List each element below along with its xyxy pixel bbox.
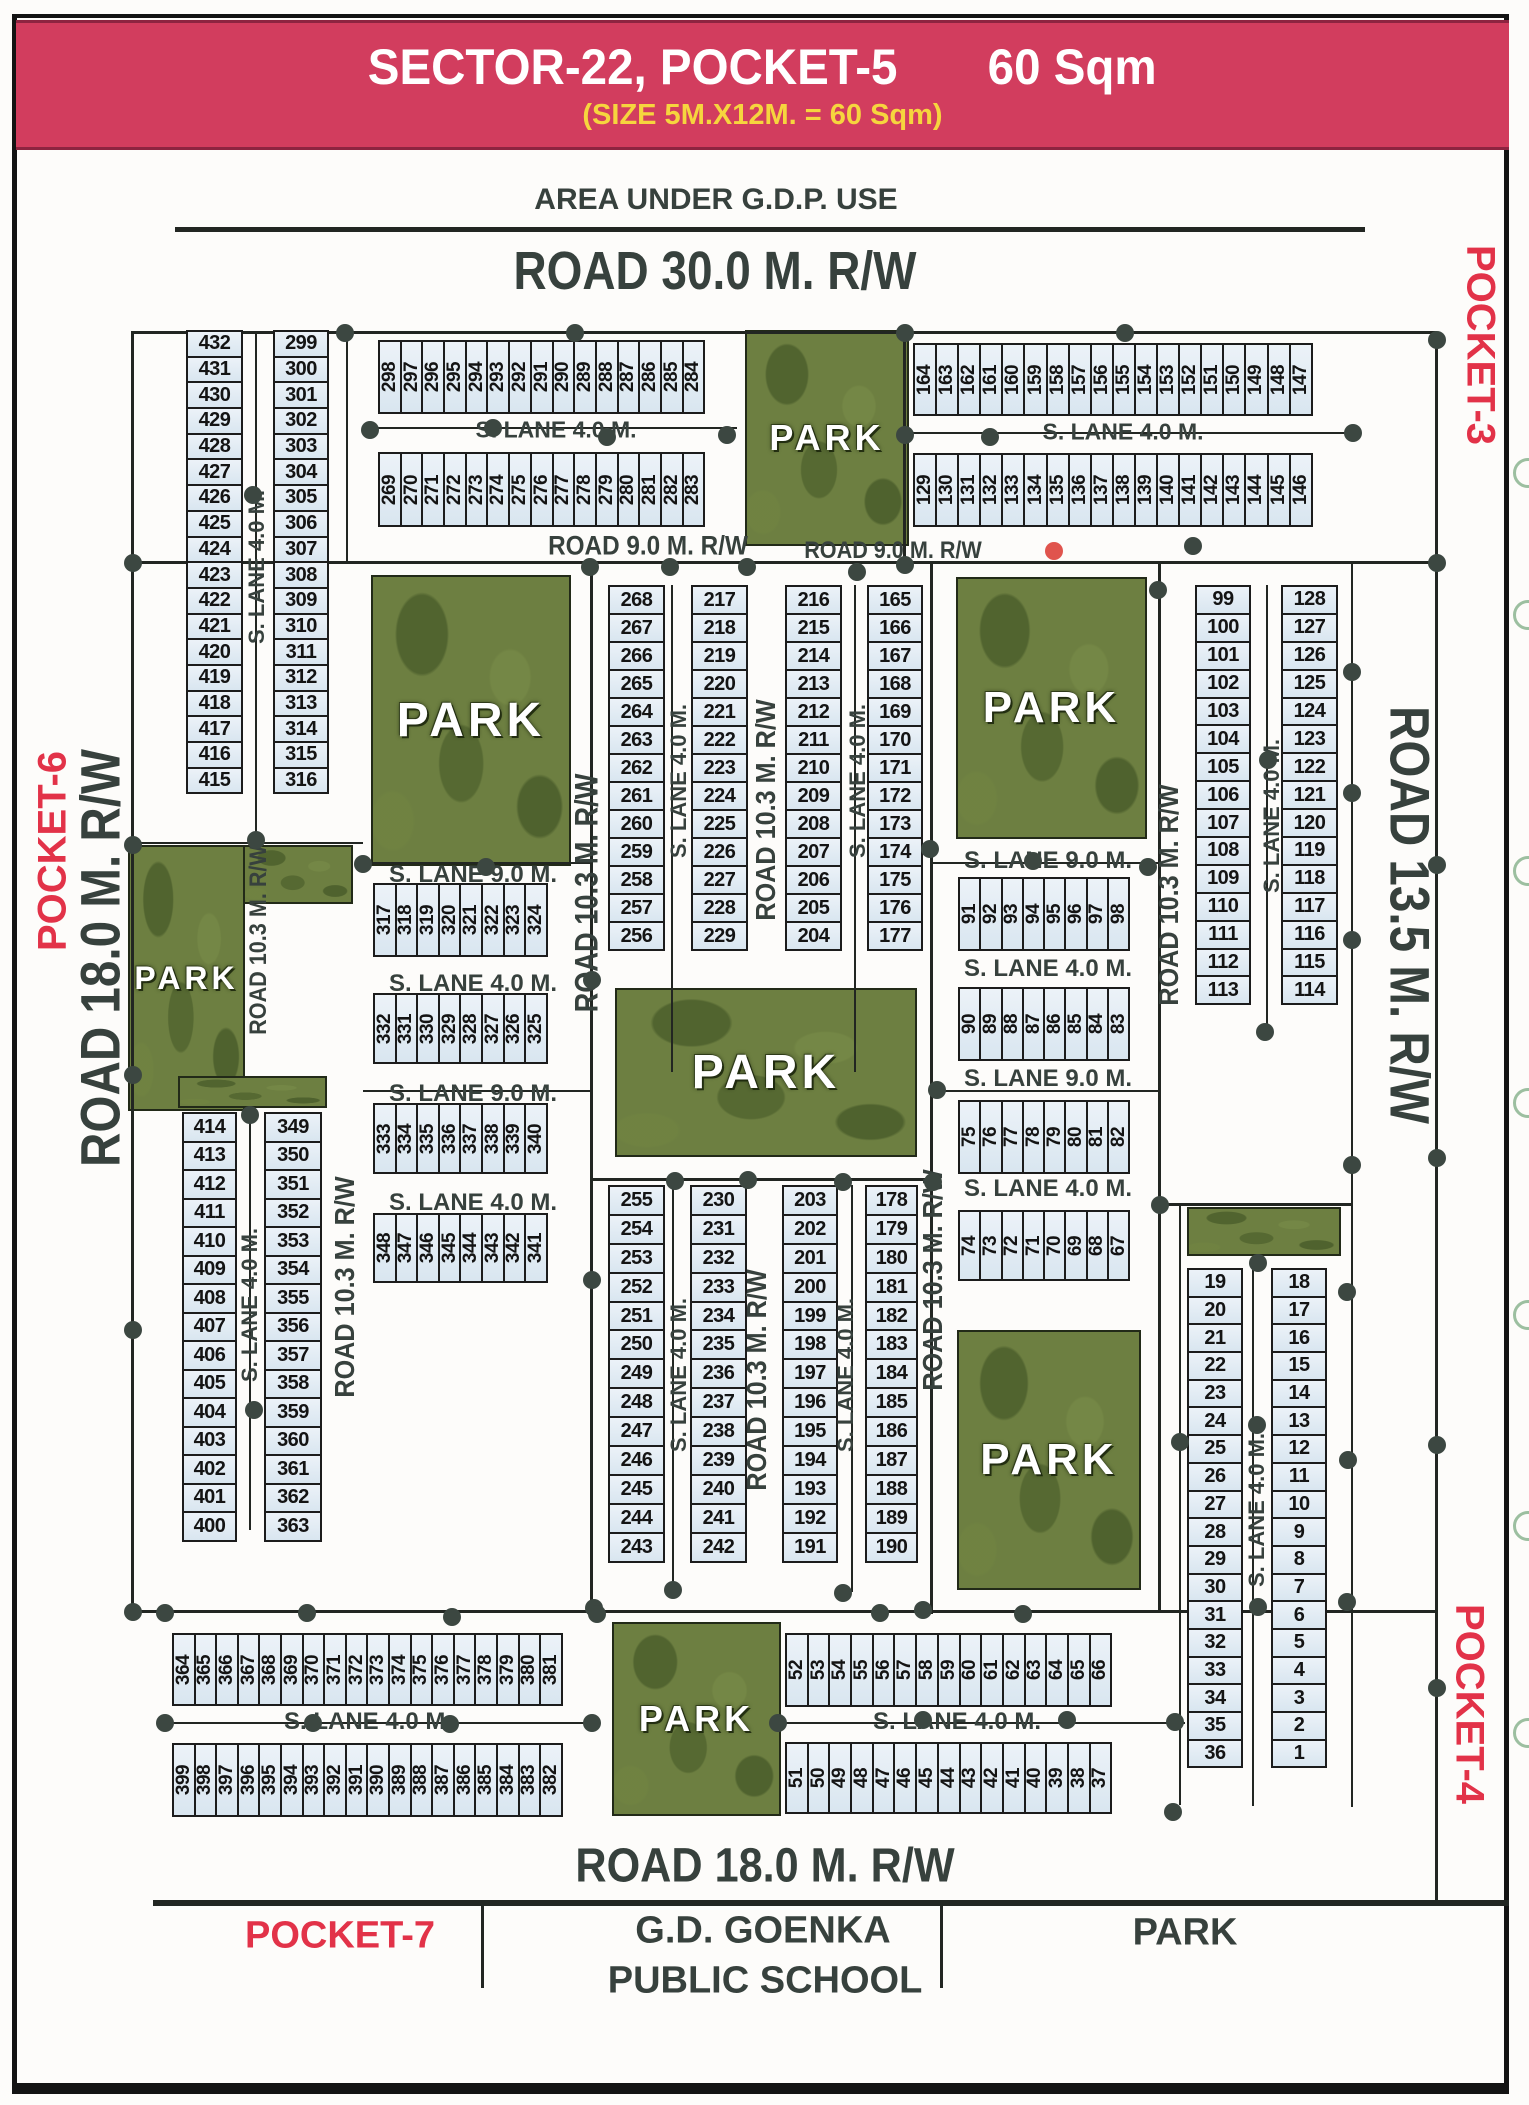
plot-357: 357 xyxy=(264,1340,322,1371)
plot-387: 387 xyxy=(431,1743,455,1817)
plot-column: 4324314304294284274264254244234224214204… xyxy=(186,330,243,794)
plot-389: 389 xyxy=(388,1743,412,1817)
plot-46: 46 xyxy=(893,1742,917,1814)
plot-343: 343 xyxy=(481,1213,505,1283)
plot-12: 12 xyxy=(1271,1434,1327,1464)
plot-360: 360 xyxy=(264,1426,322,1457)
plot-429: 429 xyxy=(186,407,243,435)
label-pocket-7: POCKET-7 xyxy=(245,1915,435,1958)
node-dot xyxy=(1338,1283,1356,1301)
plot-43: 43 xyxy=(959,1742,983,1814)
node-dot xyxy=(1149,581,1167,599)
plot-385: 385 xyxy=(474,1743,498,1817)
plot-15: 15 xyxy=(1271,1351,1327,1381)
plot-427: 427 xyxy=(186,458,243,486)
plot-411: 411 xyxy=(182,1198,237,1229)
plot-150: 150 xyxy=(1222,343,1246,416)
plot-221: 221 xyxy=(691,697,748,727)
node-dot xyxy=(664,1581,682,1599)
plot-21: 21 xyxy=(1187,1323,1243,1353)
node-dot xyxy=(484,419,502,437)
plot-152: 152 xyxy=(1178,343,1202,416)
plot-column: 1281271261251241231221211201191181171161… xyxy=(1281,585,1338,1005)
plot-237: 237 xyxy=(690,1387,747,1418)
park-label: PARK xyxy=(134,960,238,997)
plot-10: 10 xyxy=(1271,1490,1327,1520)
plot-103: 103 xyxy=(1195,697,1251,727)
plot-173: 173 xyxy=(867,809,923,839)
node-dot xyxy=(598,428,616,446)
plot-64: 64 xyxy=(1045,1633,1069,1707)
node-dot xyxy=(1151,1196,1169,1214)
plot-207: 207 xyxy=(785,837,842,867)
plot-308: 308 xyxy=(273,561,329,589)
plot-204: 204 xyxy=(785,921,842,951)
plot-283: 283 xyxy=(682,452,706,527)
plot-421: 421 xyxy=(186,613,243,641)
plot-100: 100 xyxy=(1195,613,1251,643)
plot-66: 66 xyxy=(1089,1633,1113,1707)
plot-371: 371 xyxy=(323,1633,347,1706)
plot-390: 390 xyxy=(366,1743,390,1817)
plot-255: 255 xyxy=(608,1185,665,1216)
plot-110: 110 xyxy=(1195,892,1251,922)
plot-90: 90 xyxy=(958,987,981,1061)
plot-293: 293 xyxy=(486,340,510,414)
plot-170: 170 xyxy=(867,725,923,755)
plot-244: 244 xyxy=(608,1503,665,1534)
plot-69: 69 xyxy=(1064,1210,1087,1281)
plot-88: 88 xyxy=(1001,987,1024,1061)
plot-strip: 7576777879808182 xyxy=(958,1100,1130,1174)
road-line xyxy=(590,561,593,1614)
plot-334: 334 xyxy=(395,1103,419,1174)
node-dot xyxy=(566,324,584,342)
plot-4: 4 xyxy=(1271,1656,1327,1686)
node-dot xyxy=(1428,331,1446,349)
plot-236: 236 xyxy=(690,1358,747,1389)
plot-346: 346 xyxy=(416,1213,440,1283)
plot-384: 384 xyxy=(496,1743,520,1817)
plot-155: 155 xyxy=(1112,343,1136,416)
node-dot xyxy=(1339,1451,1357,1469)
node-dot xyxy=(924,1173,942,1191)
plot-57: 57 xyxy=(893,1633,917,1707)
scan-artifact-ring xyxy=(1513,856,1529,886)
frame-bottom xyxy=(12,2083,1509,2094)
plot-84: 84 xyxy=(1086,987,1109,1061)
plot-231: 231 xyxy=(690,1214,747,1245)
plot-373: 373 xyxy=(366,1633,390,1706)
plot-61: 61 xyxy=(980,1633,1004,1707)
plot-128: 128 xyxy=(1281,585,1338,615)
plot-7: 7 xyxy=(1271,1573,1327,1603)
plot-239: 239 xyxy=(690,1445,747,1476)
plot-130: 130 xyxy=(935,453,959,527)
park-label: PARK xyxy=(692,1045,840,1100)
plot-29: 29 xyxy=(1187,1545,1243,1575)
plot-156: 156 xyxy=(1090,343,1114,416)
plot-392: 392 xyxy=(323,1743,347,1817)
plot-426: 426 xyxy=(186,484,243,512)
plot-141: 141 xyxy=(1178,453,1202,527)
plot-310: 310 xyxy=(273,613,329,641)
plot-249: 249 xyxy=(608,1358,665,1389)
plot-168: 168 xyxy=(867,669,923,699)
node-dot xyxy=(1343,784,1361,802)
plot-70: 70 xyxy=(1043,1210,1066,1281)
plot-259: 259 xyxy=(608,837,665,867)
plot-315: 315 xyxy=(273,741,329,769)
plot-328: 328 xyxy=(459,993,483,1064)
plot-129: 129 xyxy=(913,453,937,527)
park: PARK xyxy=(615,988,917,1157)
plot-67: 67 xyxy=(1107,1210,1130,1281)
plot-256: 256 xyxy=(608,921,665,951)
plot-261: 261 xyxy=(608,781,665,811)
plot-72: 72 xyxy=(1001,1210,1024,1281)
plot-353: 353 xyxy=(264,1226,322,1257)
node-dot xyxy=(583,1714,601,1732)
plot-345: 345 xyxy=(438,1213,462,1283)
plot-322: 322 xyxy=(481,883,505,957)
plot-258: 258 xyxy=(608,865,665,895)
plot-307: 307 xyxy=(273,536,329,564)
node-dot xyxy=(124,836,142,854)
plot-286: 286 xyxy=(638,340,662,414)
plot-410: 410 xyxy=(182,1226,237,1257)
plot-74: 74 xyxy=(958,1210,981,1281)
plot-105: 105 xyxy=(1195,752,1251,782)
plot-18: 18 xyxy=(1271,1268,1327,1298)
plot-359: 359 xyxy=(264,1397,322,1428)
plot-16: 16 xyxy=(1271,1323,1327,1353)
plot-395: 395 xyxy=(258,1743,282,1817)
scan-artifact-ring xyxy=(1513,1300,1529,1330)
plot-312: 312 xyxy=(273,664,329,692)
plot-182: 182 xyxy=(865,1301,918,1332)
plot-45: 45 xyxy=(915,1742,939,1814)
plot-402: 402 xyxy=(182,1454,237,1485)
road-line xyxy=(940,1900,943,1988)
road-line xyxy=(1158,1203,1352,1206)
plot-416: 416 xyxy=(186,741,243,769)
plot-85: 85 xyxy=(1064,987,1087,1061)
label-area-under-g-d-p-use: AREA UNDER G.D.P. USE xyxy=(534,183,897,217)
node-dot xyxy=(1024,852,1042,870)
plot-194: 194 xyxy=(782,1445,838,1476)
plot-313: 313 xyxy=(273,690,329,718)
plot-388: 388 xyxy=(410,1743,434,1817)
park-label: PARK xyxy=(769,417,884,459)
plot-124: 124 xyxy=(1281,697,1338,727)
plot-350: 350 xyxy=(264,1141,322,1172)
plot-183: 183 xyxy=(865,1329,918,1360)
plot-262: 262 xyxy=(608,753,665,783)
plot-73: 73 xyxy=(979,1210,1002,1281)
plot-422: 422 xyxy=(186,587,243,615)
plot-135: 135 xyxy=(1046,453,1070,527)
plot-122: 122 xyxy=(1281,752,1338,782)
plot-406: 406 xyxy=(182,1340,237,1371)
plot-162: 162 xyxy=(957,343,981,416)
node-dot xyxy=(245,1401,263,1419)
plot-404: 404 xyxy=(182,1397,237,1428)
plot-374: 374 xyxy=(388,1633,412,1706)
plot-325: 325 xyxy=(524,993,548,1064)
plot-311: 311 xyxy=(273,638,329,666)
node-dot xyxy=(354,855,372,873)
plot-333: 333 xyxy=(373,1103,397,1174)
node-dot xyxy=(1344,424,1362,442)
road-line xyxy=(590,1178,932,1181)
road-line xyxy=(903,333,906,563)
plot-56: 56 xyxy=(872,1633,896,1707)
park: PARK xyxy=(957,1330,1141,1590)
plot-203: 203 xyxy=(782,1185,838,1216)
plot-306: 306 xyxy=(273,510,329,538)
plot-337: 337 xyxy=(459,1103,483,1174)
plot-425: 425 xyxy=(186,510,243,538)
node-dot xyxy=(156,1714,174,1732)
plot-163: 163 xyxy=(935,343,959,416)
plot-229: 229 xyxy=(691,921,748,951)
plot-269: 269 xyxy=(378,452,402,527)
node-dot xyxy=(361,421,379,439)
plot-154: 154 xyxy=(1134,343,1158,416)
plot-217: 217 xyxy=(691,585,748,615)
plot-272: 272 xyxy=(443,452,467,527)
plot-26: 26 xyxy=(1187,1462,1243,1492)
label-s-lane-4-0-m: S. LANE 4.0 M. xyxy=(873,1708,1041,1736)
plot-181: 181 xyxy=(865,1272,918,1303)
plot-297: 297 xyxy=(400,340,424,414)
park: PARK xyxy=(956,577,1147,839)
plot-139: 139 xyxy=(1134,453,1158,527)
park-label: PARK xyxy=(983,683,1120,733)
plot-274: 274 xyxy=(486,452,510,527)
plot-8: 8 xyxy=(1271,1545,1327,1575)
plot-316: 316 xyxy=(273,767,329,795)
frame-left xyxy=(12,14,17,2094)
plot-49: 49 xyxy=(828,1742,852,1814)
plot-292: 292 xyxy=(508,340,532,414)
plot-324: 324 xyxy=(524,883,548,957)
node-dot xyxy=(298,1604,316,1622)
plot-column: 192021222324252627282930313233343536 xyxy=(1187,1268,1243,1768)
plot-strip: 3643653663673683693703713723733743753763… xyxy=(172,1633,563,1706)
node-dot xyxy=(1259,751,1277,769)
plot-415: 415 xyxy=(186,767,243,795)
plot-362: 362 xyxy=(264,1483,322,1514)
plot-218: 218 xyxy=(691,613,748,643)
node-dot xyxy=(477,858,495,876)
plot-318: 318 xyxy=(395,883,419,957)
node-dot xyxy=(1343,1156,1361,1174)
plot-210: 210 xyxy=(785,753,842,783)
plot-14: 14 xyxy=(1271,1379,1327,1409)
plot-224: 224 xyxy=(691,781,748,811)
plot-358: 358 xyxy=(264,1369,322,1400)
plot-400: 400 xyxy=(182,1511,237,1542)
plot-409: 409 xyxy=(182,1255,237,1286)
label-s-lane-9-0-m: S. LANE 9.0 M. xyxy=(964,847,1132,875)
label-s-lane-4-0-m: S. LANE 4.0 M. xyxy=(244,490,270,644)
plot-146: 146 xyxy=(1289,453,1313,527)
plot-336: 336 xyxy=(438,1103,462,1174)
plot-strip: 2692702712722732742752762772782792802812… xyxy=(378,452,705,527)
plot-246: 246 xyxy=(608,1445,665,1476)
plot-377: 377 xyxy=(453,1633,477,1706)
plot-126: 126 xyxy=(1281,641,1338,671)
node-dot xyxy=(871,1604,889,1622)
node-dot xyxy=(1116,324,1134,342)
park-label: PARK xyxy=(639,1698,754,1740)
plot-39: 39 xyxy=(1045,1742,1069,1814)
plot-58: 58 xyxy=(915,1633,939,1707)
node-dot xyxy=(1256,1023,1274,1041)
plot-20: 20 xyxy=(1187,1296,1243,1326)
plot-424: 424 xyxy=(186,536,243,564)
plot-77: 77 xyxy=(1001,1100,1024,1174)
plot-273: 273 xyxy=(465,452,489,527)
plot-300: 300 xyxy=(273,356,329,384)
plot-93: 93 xyxy=(1001,877,1024,951)
plot-strip: 348347346345344343342341 xyxy=(373,1213,548,1283)
node-dot xyxy=(1428,856,1446,874)
page-subtitle: (SIZE 5M.X12M. = 60 Sqm) xyxy=(582,99,942,132)
plot-201: 201 xyxy=(782,1243,838,1274)
node-dot xyxy=(1428,1679,1446,1697)
plot-287: 287 xyxy=(617,340,641,414)
plot-145: 145 xyxy=(1267,453,1291,527)
plot-column: 9910010110210310410510610710810911011111… xyxy=(1195,585,1251,1005)
plot-351: 351 xyxy=(264,1169,322,1200)
label-road-18-0-m-r-w: ROAD 18.0 M. R/W xyxy=(575,1839,954,1894)
plot-180: 180 xyxy=(865,1243,918,1274)
label-road-13-5-m-r-w: ROAD 13.5 M. R/W xyxy=(1378,706,1443,1124)
plot-298: 298 xyxy=(378,340,402,414)
plot-331: 331 xyxy=(395,993,419,1064)
plot-169: 169 xyxy=(867,697,923,727)
plot-219: 219 xyxy=(691,641,748,671)
label-s-lane-4-0-m: S. LANE 4.0 M. xyxy=(1042,419,1203,446)
plot-22: 22 xyxy=(1187,1351,1243,1381)
plot-344: 344 xyxy=(459,1213,483,1283)
plot-75: 75 xyxy=(958,1100,981,1174)
plot-140: 140 xyxy=(1156,453,1180,527)
label-s-lane-9-0-m: S. LANE 9.0 M. xyxy=(389,861,557,889)
plot-121: 121 xyxy=(1281,780,1338,810)
plot-62: 62 xyxy=(1002,1633,1026,1707)
plot-352: 352 xyxy=(264,1198,322,1229)
node-dot xyxy=(1184,537,1202,555)
plot-367: 367 xyxy=(237,1633,261,1706)
plot-379: 379 xyxy=(496,1633,520,1706)
node-dot xyxy=(1343,663,1361,681)
plot-211: 211 xyxy=(785,725,842,755)
node-dot xyxy=(124,554,142,572)
plot-111: 111 xyxy=(1195,920,1251,950)
plot-column: 178179180181182183184185186187188189190 xyxy=(865,1185,918,1563)
node-dot xyxy=(124,1321,142,1339)
scan-artifact-ring xyxy=(1513,458,1529,488)
plot-151: 151 xyxy=(1200,343,1224,416)
plot-35: 35 xyxy=(1187,1711,1243,1741)
plot-193: 193 xyxy=(782,1474,838,1505)
plot-397: 397 xyxy=(215,1743,239,1817)
plot-106: 106 xyxy=(1195,780,1251,810)
node-dot xyxy=(443,1608,461,1626)
park xyxy=(1187,1207,1341,1256)
plot-column: 2993003013023033043053063073083093103113… xyxy=(273,330,329,794)
plot-417: 417 xyxy=(186,715,243,743)
plot-383: 383 xyxy=(518,1743,542,1817)
plot-column: 255254253252251250249248247246245244243 xyxy=(608,1185,665,1563)
plot-347: 347 xyxy=(395,1213,419,1283)
label-road-10-3-m-r-w: ROAD 10.3 M. R/W xyxy=(741,1269,773,1490)
plot-431: 431 xyxy=(186,356,243,384)
plot-403: 403 xyxy=(182,1426,237,1457)
plot-101: 101 xyxy=(1195,641,1251,671)
plot-118: 118 xyxy=(1281,864,1338,894)
node-dot xyxy=(124,1603,142,1621)
plot-267: 267 xyxy=(608,613,665,643)
plot-420: 420 xyxy=(186,638,243,666)
plot-321: 321 xyxy=(459,883,483,957)
label-s-lane-4-0-m: S. LANE 4.0 M. xyxy=(964,955,1132,983)
node-dot xyxy=(124,1066,142,1084)
node-dot xyxy=(896,556,914,574)
plot-48: 48 xyxy=(850,1742,874,1814)
plot-302: 302 xyxy=(273,407,329,435)
node-dot xyxy=(1014,1605,1032,1623)
node-dot xyxy=(583,1271,601,1289)
plot-265: 265 xyxy=(608,669,665,699)
plot-220: 220 xyxy=(691,669,748,699)
plot-column: 216215214213212211210209208207206205204 xyxy=(785,585,842,951)
red-node-dot xyxy=(1045,542,1063,560)
plot-strip: 1291301311321331341351361371381391401411… xyxy=(913,453,1313,527)
node-dot xyxy=(1171,1433,1189,1451)
plot-212: 212 xyxy=(785,697,842,727)
plot-216: 216 xyxy=(785,585,842,615)
plot-277: 277 xyxy=(552,452,576,527)
plot-370: 370 xyxy=(302,1633,326,1706)
plot-412: 412 xyxy=(182,1169,237,1200)
plot-407: 407 xyxy=(182,1312,237,1343)
node-dot xyxy=(1249,1598,1267,1616)
plot-268: 268 xyxy=(608,585,665,615)
scan-artifact-ring xyxy=(1513,600,1529,630)
plot-396: 396 xyxy=(237,1743,261,1817)
road-line xyxy=(346,333,348,563)
node-dot xyxy=(914,1601,932,1619)
plot-338: 338 xyxy=(481,1103,505,1174)
plot-369: 369 xyxy=(280,1633,304,1706)
scan-artifact-ring xyxy=(1513,1511,1529,1541)
plot-188: 188 xyxy=(865,1474,918,1505)
plot-242: 242 xyxy=(690,1532,747,1563)
plot-40: 40 xyxy=(1024,1742,1048,1814)
plot-225: 225 xyxy=(691,809,748,839)
park: PARK xyxy=(612,1622,781,1816)
plot-94: 94 xyxy=(1022,877,1045,951)
plot-114: 114 xyxy=(1281,975,1338,1005)
plot-strip: 3993983973963953943933923913903893883873… xyxy=(172,1743,563,1817)
node-dot xyxy=(304,1714,322,1732)
plot-238: 238 xyxy=(690,1416,747,1447)
